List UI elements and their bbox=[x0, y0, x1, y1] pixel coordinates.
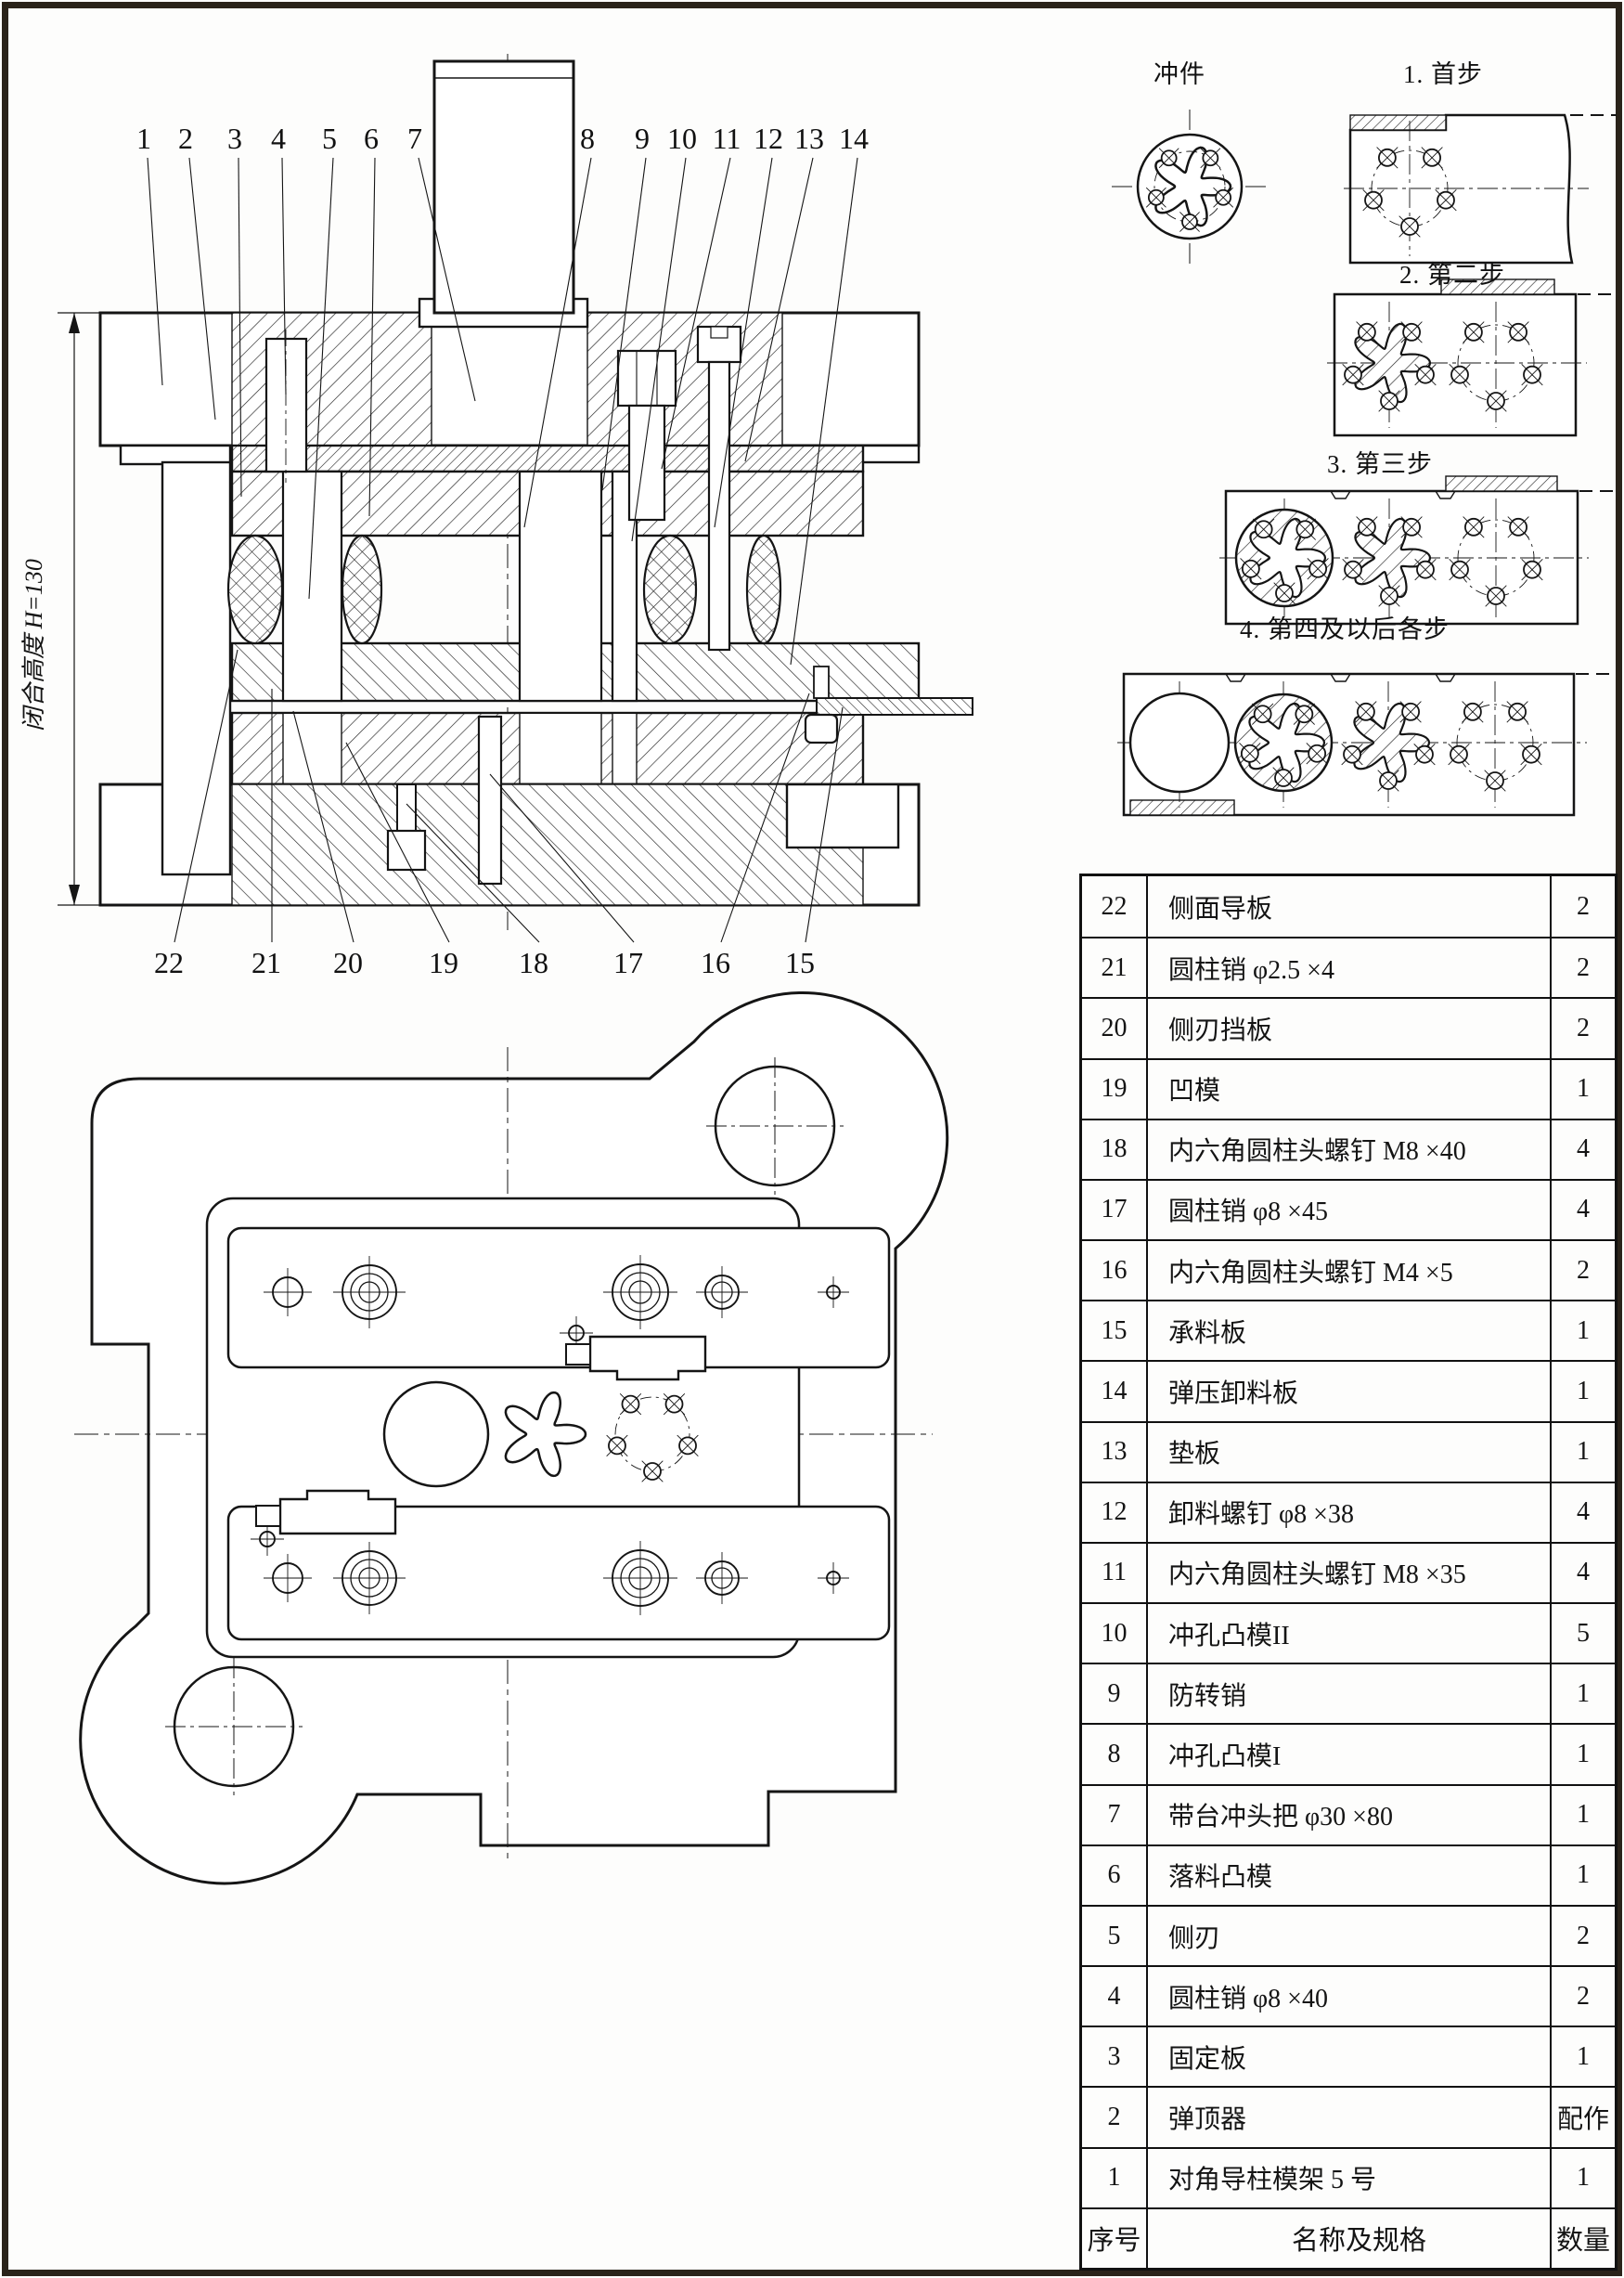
callout-7: 7 bbox=[407, 122, 422, 155]
part-number-cell: 3 bbox=[1082, 2026, 1146, 2086]
callout-5: 5 bbox=[322, 122, 337, 155]
callout-4: 4 bbox=[271, 122, 286, 155]
callout-2: 2 bbox=[178, 122, 193, 155]
part-name-cell: 防转销 bbox=[1146, 1663, 1552, 1723]
callout-9: 9 bbox=[635, 122, 650, 155]
callout-21: 21 bbox=[251, 946, 281, 979]
strip-step-2 bbox=[1327, 279, 1617, 435]
part-qty-cell: 1 bbox=[1552, 1300, 1615, 1360]
part-number-cell: 1 bbox=[1082, 2147, 1146, 2207]
part-qty-cell: 1 bbox=[1552, 1663, 1615, 1723]
part-number-cell: 22 bbox=[1082, 876, 1146, 937]
part-qty-cell: 2 bbox=[1552, 1965, 1615, 2026]
part-name-cell: 圆柱销 φ2.5 ×4 bbox=[1146, 937, 1552, 997]
strip-step-1 bbox=[1344, 115, 1617, 263]
callout-6: 6 bbox=[364, 122, 379, 155]
part-name-cell: 圆柱销 φ8 ×45 bbox=[1146, 1179, 1552, 1239]
plan-view bbox=[74, 993, 947, 1883]
part-name-cell: 侧刃挡板 bbox=[1146, 997, 1552, 1057]
part-qty-cell: 2 bbox=[1552, 1905, 1615, 1965]
part-number-cell: 16 bbox=[1082, 1239, 1146, 1300]
part-number-cell: 13 bbox=[1082, 1421, 1146, 1482]
part-number-cell: 2 bbox=[1082, 2086, 1146, 2146]
part-number-cell: 17 bbox=[1082, 1179, 1146, 1239]
part-qty-cell: 1 bbox=[1552, 1421, 1615, 1482]
part-name-cell: 固定板 bbox=[1146, 2026, 1552, 2086]
part-number-cell: 12 bbox=[1082, 1482, 1146, 1542]
step-3-label: 3. 第三步 bbox=[1327, 444, 1433, 480]
callout-20: 20 bbox=[333, 946, 363, 979]
callout-12: 12 bbox=[754, 122, 783, 155]
part-number-cell: 11 bbox=[1082, 1542, 1146, 1602]
strip-step-4 bbox=[1117, 674, 1617, 815]
part-number-cell: 10 bbox=[1082, 1602, 1146, 1663]
table-header-name: 名称及规格 bbox=[1146, 2207, 1552, 2268]
closed-height-dimension-label: 闭合高度 H=130 bbox=[15, 559, 49, 731]
part-qty-cell: 1 bbox=[1552, 1058, 1615, 1119]
part-qty-cell: 4 bbox=[1552, 1119, 1615, 1179]
part-number-cell: 4 bbox=[1082, 1965, 1146, 2026]
punched-part-label: 冲件 bbox=[1154, 54, 1205, 90]
step-4-label: 4. 第四及以后各步 bbox=[1240, 609, 1450, 645]
callout-16: 16 bbox=[701, 946, 730, 979]
part-name-cell: 凹模 bbox=[1146, 1058, 1552, 1119]
callout-19: 19 bbox=[429, 946, 458, 979]
part-qty-cell: 4 bbox=[1552, 1542, 1615, 1602]
part-name-cell: 对角导柱模架 5 号 bbox=[1146, 2147, 1552, 2207]
part-number-cell: 14 bbox=[1082, 1360, 1146, 1420]
step-2-label: 2. 第二步 bbox=[1399, 254, 1505, 291]
part-qty-cell: 1 bbox=[1552, 1784, 1615, 1844]
part-qty-cell: 2 bbox=[1552, 1239, 1615, 1300]
callout-13: 13 bbox=[794, 122, 824, 155]
part-qty-cell: 1 bbox=[1552, 2026, 1615, 2086]
part-qty-cell: 1 bbox=[1552, 2147, 1615, 2207]
callout-17: 17 bbox=[613, 946, 643, 979]
callout-11: 11 bbox=[713, 122, 741, 155]
step-1-label: 1. 首步 bbox=[1403, 54, 1483, 90]
part-number-cell: 8 bbox=[1082, 1723, 1146, 1783]
callout-8: 8 bbox=[580, 122, 595, 155]
table-header-qty: 数量 bbox=[1552, 2207, 1615, 2268]
part-name-cell: 落料凸模 bbox=[1146, 1844, 1552, 1905]
part-qty-cell: 1 bbox=[1552, 1844, 1615, 1905]
part-qty-cell: 1 bbox=[1552, 1360, 1615, 1420]
part-number-cell: 19 bbox=[1082, 1058, 1146, 1119]
part-qty-cell: 2 bbox=[1552, 876, 1615, 937]
callout-22: 22 bbox=[154, 946, 184, 979]
callout-3: 3 bbox=[227, 122, 242, 155]
part-qty-cell: 2 bbox=[1552, 937, 1615, 997]
part-qty-cell: 5 bbox=[1552, 1602, 1615, 1663]
strip-step-3 bbox=[1219, 476, 1617, 624]
part-number-cell: 15 bbox=[1082, 1300, 1146, 1360]
parts-table: 22侧面导板2 21圆柱销 φ2.5 ×42 20侧刃挡板2 19凹模1 18内… bbox=[1079, 874, 1618, 2271]
part-qty-cell: 配作 bbox=[1552, 2086, 1615, 2146]
part-number-cell: 18 bbox=[1082, 1119, 1146, 1179]
part-name-cell: 带台冲头把 φ30 ×80 bbox=[1146, 1784, 1552, 1844]
part-number-cell: 20 bbox=[1082, 997, 1146, 1057]
callout-14: 14 bbox=[839, 122, 869, 155]
part-name-cell: 冲孔凸模II bbox=[1146, 1602, 1552, 1663]
front-section-view bbox=[58, 54, 973, 930]
part-qty-cell: 1 bbox=[1552, 1723, 1615, 1783]
callout-18: 18 bbox=[519, 946, 548, 979]
part-qty-cell: 2 bbox=[1552, 997, 1615, 1057]
part-name-cell: 弹压卸料板 bbox=[1146, 1360, 1552, 1420]
part-name-cell: 圆柱销 φ8 ×40 bbox=[1146, 1965, 1552, 2026]
table-header-no: 序号 bbox=[1082, 2207, 1146, 2268]
part-name-cell: 内六角圆柱头螺钉 M8 ×40 bbox=[1146, 1119, 1552, 1179]
part-qty-cell: 4 bbox=[1552, 1179, 1615, 1239]
part-name-cell: 承料板 bbox=[1146, 1300, 1552, 1360]
part-number-cell: 6 bbox=[1082, 1844, 1146, 1905]
part-name-cell: 侧面导板 bbox=[1146, 876, 1552, 937]
part-number-cell: 21 bbox=[1082, 937, 1146, 997]
part-name-cell: 垫板 bbox=[1146, 1421, 1552, 1482]
callout-1: 1 bbox=[136, 122, 151, 155]
part-number-cell: 5 bbox=[1082, 1905, 1146, 1965]
part-name-cell: 内六角圆柱头螺钉 M4 ×5 bbox=[1146, 1239, 1552, 1300]
callout-15: 15 bbox=[785, 946, 815, 979]
part-number-cell: 7 bbox=[1082, 1784, 1146, 1844]
part-number-cell: 9 bbox=[1082, 1663, 1146, 1723]
punched-part-view bbox=[1112, 110, 1268, 264]
part-qty-cell: 4 bbox=[1552, 1482, 1615, 1542]
part-name-cell: 内六角圆柱头螺钉 M8 ×35 bbox=[1146, 1542, 1552, 1602]
part-name-cell: 冲孔凸模I bbox=[1146, 1723, 1552, 1783]
part-name-cell: 侧刃 bbox=[1146, 1905, 1552, 1965]
callout-10: 10 bbox=[667, 122, 697, 155]
part-name-cell: 卸料螺钉 φ8 ×38 bbox=[1146, 1482, 1552, 1542]
part-name-cell: 弹顶器 bbox=[1146, 2086, 1552, 2146]
